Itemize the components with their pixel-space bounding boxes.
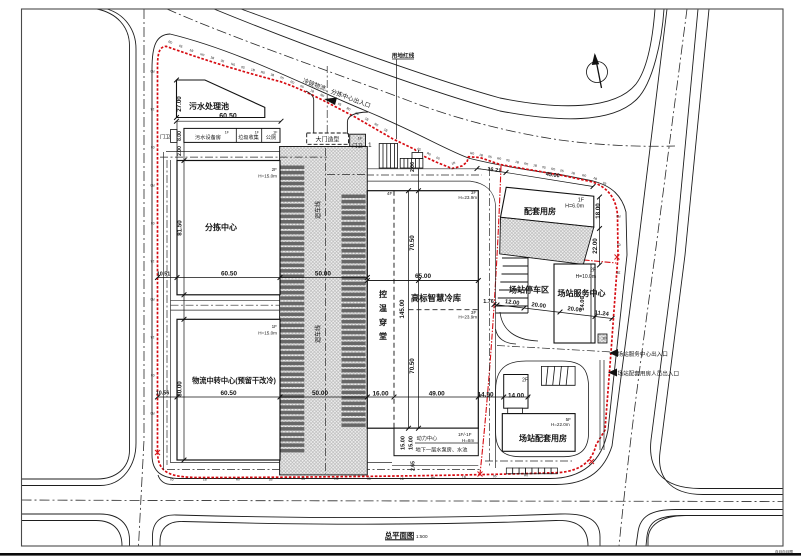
svg-text:控: 控 <box>379 289 387 299</box>
svg-text:18.00: 18.00 <box>595 203 602 219</box>
svg-text:大门造型: 大门造型 <box>315 136 339 144</box>
svg-text:1F: 1F <box>358 137 363 141</box>
svg-text:1:500: 1:500 <box>416 534 428 539</box>
svg-text:用地红线: 用地红线 <box>391 52 415 60</box>
svg-text:1: 1 <box>368 142 372 149</box>
svg-text:2.00: 2.00 <box>177 146 183 156</box>
svg-text:50.00: 50.00 <box>315 271 331 278</box>
svg-text:1F: 1F <box>272 324 278 329</box>
svg-text:70.50: 70.50 <box>409 358 416 374</box>
svg-text:R0: R0 <box>150 183 154 187</box>
svg-text:H=22.0m: H=22.0m <box>551 422 570 427</box>
svg-text:16.00: 16.00 <box>373 391 389 398</box>
svg-text:迴车线: 迴车线 <box>314 201 322 219</box>
svg-text:1.76: 1.76 <box>483 299 494 305</box>
svg-text:R0: R0 <box>431 476 435 480</box>
svg-text:05: 05 <box>493 474 497 478</box>
svg-text:门卫: 门卫 <box>160 133 170 141</box>
svg-text:60.50: 60.50 <box>221 390 237 397</box>
svg-text:H=8m: H=8m <box>462 438 475 443</box>
svg-text:H=15.0m: H=15.0m <box>258 331 277 336</box>
svg-text:60.50: 60.50 <box>219 113 237 120</box>
svg-text:污水处理池: 污水处理池 <box>189 101 229 111</box>
svg-text:1B: 1B <box>151 107 155 111</box>
svg-text:1B: 1B <box>203 477 207 481</box>
svg-text:2F: 2F <box>590 268 596 274</box>
svg-text:05: 05 <box>170 478 174 482</box>
svg-text:22.00: 22.00 <box>592 238 599 254</box>
svg-text:2.65: 2.65 <box>411 461 417 471</box>
svg-text:81.50: 81.50 <box>177 220 184 236</box>
svg-text:污水设备房: 污水设备房 <box>195 133 221 141</box>
svg-text:R0: R0 <box>616 214 620 218</box>
svg-text:地下一层水泵房、水池: 地下一层水泵房、水池 <box>416 446 468 454</box>
svg-text:场站配套用房: 场站配套用房 <box>519 433 567 443</box>
svg-text:R0: R0 <box>150 297 154 301</box>
svg-text:H=23.9m: H=23.9m <box>458 315 477 320</box>
svg-text:H=10.0m: H=10.0m <box>576 274 596 280</box>
svg-text:动力中心: 动力中心 <box>417 434 438 442</box>
svg-text:05: 05 <box>367 477 371 481</box>
svg-text:15.00: 15.00 <box>409 436 415 450</box>
svg-text:物流中转中心(预留干改冷): 物流中转中心(预留干改冷) <box>192 376 276 385</box>
svg-text:1B: 1B <box>151 259 155 263</box>
svg-text:49.00: 49.00 <box>429 391 445 398</box>
svg-text:27.00: 27.00 <box>176 96 183 112</box>
svg-text:80.00: 80.00 <box>177 381 184 397</box>
svg-text:场站服务中心出入口: 场站服务中心出入口 <box>618 350 668 358</box>
svg-text:温: 温 <box>379 303 387 313</box>
svg-text:总平面图: 总平面图 <box>385 531 415 540</box>
svg-text:60.50: 60.50 <box>221 271 237 278</box>
svg-text:1F: 1F <box>273 131 278 135</box>
svg-text:8.00: 8.00 <box>177 131 183 141</box>
svg-text:1B: 1B <box>462 475 466 479</box>
svg-text:H=23.9m: H=23.9m <box>458 195 477 200</box>
svg-text:公厕: 公厕 <box>266 134 276 141</box>
svg-text:H=6.0m: H=6.0m <box>565 204 585 210</box>
svg-text:1B: 1B <box>479 153 484 158</box>
svg-text:15.00: 15.00 <box>401 436 407 450</box>
svg-text:场站配套用房人员出入口: 场站配套用房人员出入口 <box>618 370 680 378</box>
svg-text:穿: 穿 <box>379 317 387 327</box>
svg-text:R0: R0 <box>236 477 240 481</box>
svg-text:10.56: 10.56 <box>156 391 170 397</box>
svg-text:05: 05 <box>301 477 305 481</box>
svg-text:14.00: 14.00 <box>508 393 524 400</box>
svg-text:1F: 1F <box>225 131 230 135</box>
svg-text:1B: 1B <box>400 477 404 481</box>
svg-text:14.00: 14.00 <box>580 296 586 311</box>
svg-text:H=15.0m: H=15.0m <box>258 174 277 179</box>
svg-text:1B: 1B <box>151 335 155 339</box>
svg-text:R0: R0 <box>334 477 338 481</box>
svg-text:堂: 堂 <box>379 331 387 341</box>
svg-text:分拣中心: 分拣中心 <box>205 222 237 232</box>
svg-text:05: 05 <box>617 242 621 246</box>
svg-text:迴车线: 迴车线 <box>314 325 322 343</box>
svg-text:R0: R0 <box>150 69 154 73</box>
svg-text:65.00: 65.00 <box>415 273 431 280</box>
svg-text:2F: 2F <box>522 378 528 384</box>
svg-text:1B: 1B <box>571 171 576 176</box>
svg-text:1B: 1B <box>533 163 538 168</box>
svg-text:70.50: 70.50 <box>409 235 416 251</box>
svg-text:1B: 1B <box>617 271 621 275</box>
svg-text:1F/-1F: 1F/-1F <box>458 432 472 437</box>
svg-text:14.50: 14.50 <box>478 392 494 399</box>
svg-text:1F: 1F <box>602 337 607 341</box>
svg-text:05: 05 <box>151 221 155 225</box>
svg-text:场站停车区: 场站停车区 <box>509 285 549 295</box>
svg-text:配套用房: 配套用房 <box>524 206 556 216</box>
svg-text:2.06: 2.06 <box>410 162 416 172</box>
svg-text:50.00: 50.00 <box>312 390 328 397</box>
svg-text:05: 05 <box>151 145 155 149</box>
svg-text:R0: R0 <box>150 411 154 415</box>
svg-text:05: 05 <box>151 373 155 377</box>
svg-text:自目自目图: 自目自目图 <box>775 549 793 554</box>
svg-text:4F: 4F <box>387 191 393 196</box>
svg-text:1F: 1F <box>255 131 260 135</box>
svg-text:门卫: 门卫 <box>352 142 362 150</box>
svg-text:1B: 1B <box>269 477 273 481</box>
svg-text:10.51: 10.51 <box>157 272 171 278</box>
svg-text:145.00: 145.00 <box>399 299 406 318</box>
svg-text:2F: 2F <box>272 167 278 172</box>
svg-text:1B: 1B <box>515 160 520 165</box>
svg-text:高标智慧冷库: 高标智慧冷库 <box>411 293 462 303</box>
